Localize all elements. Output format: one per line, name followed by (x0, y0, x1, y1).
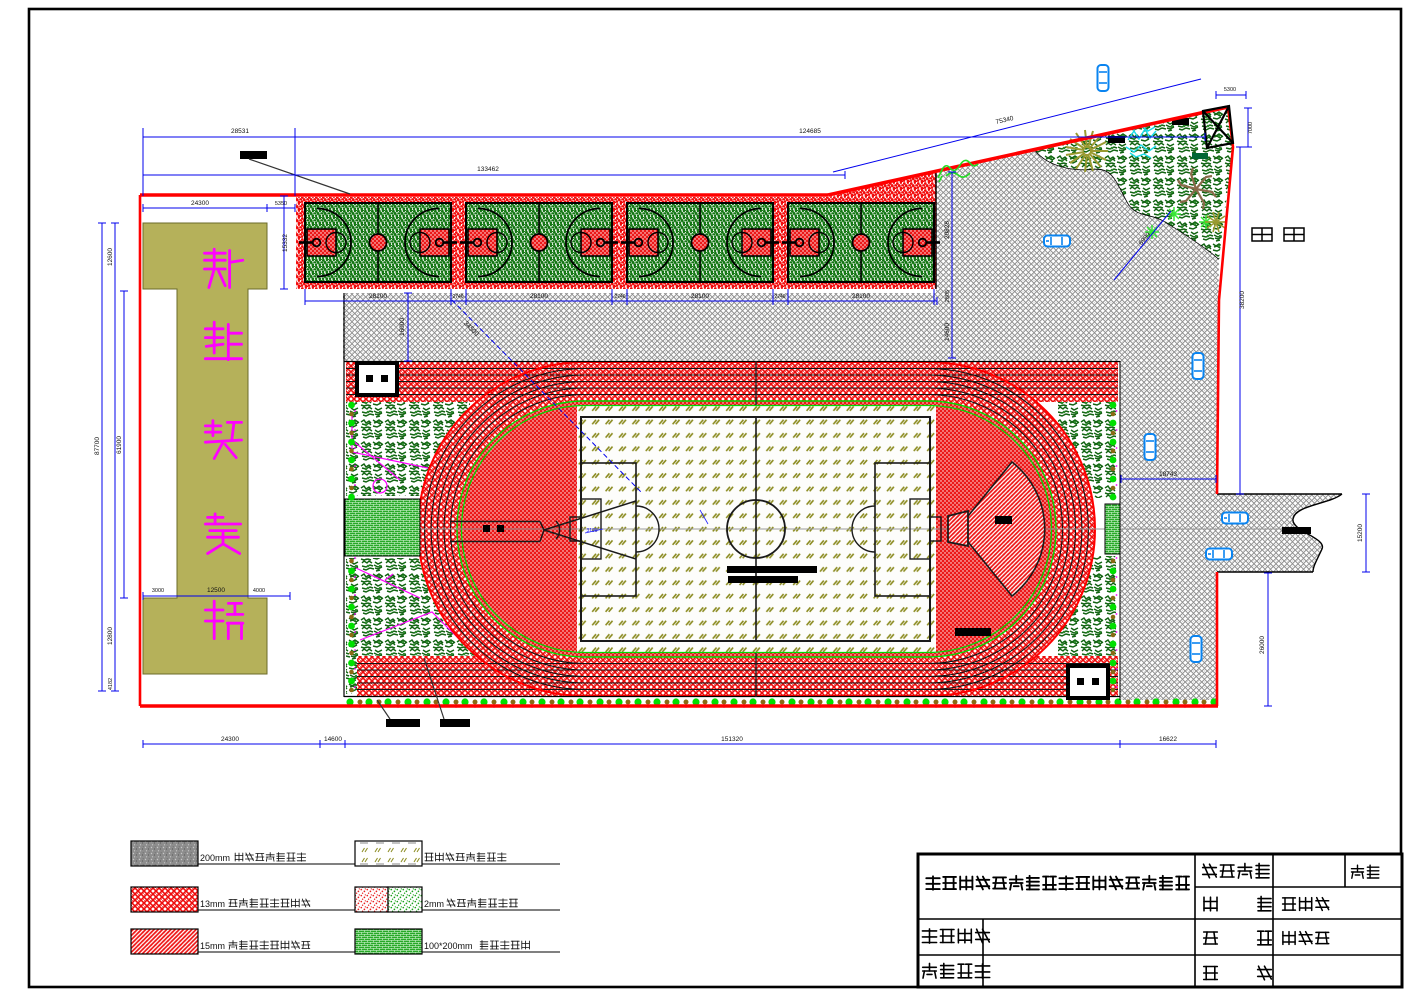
svg-text:24300: 24300 (221, 736, 239, 743)
svg-text:61900: 61900 (116, 436, 123, 454)
svg-text:12800: 12800 (107, 627, 114, 645)
svg-text:38200: 38200 (1239, 291, 1246, 309)
svg-text:28531: 28531 (231, 128, 249, 135)
svg-text:12500: 12500 (207, 587, 225, 594)
svg-text:5300: 5300 (1224, 87, 1236, 93)
svg-text:15332: 15332 (282, 234, 289, 252)
svg-text:20828: 20828 (944, 221, 951, 239)
svg-text:100*200mm: 100*200mm (424, 941, 473, 951)
svg-text:2746: 2746 (452, 294, 463, 300)
svg-text:26000: 26000 (1259, 636, 1266, 654)
svg-text:24300: 24300 (191, 200, 209, 207)
svg-text:2746: 2746 (774, 294, 785, 300)
svg-text:151320: 151320 (721, 736, 743, 743)
svg-text:28100: 28100 (369, 293, 387, 300)
svg-text:28100: 28100 (691, 293, 709, 300)
svg-text:16622: 16622 (1159, 736, 1177, 743)
svg-text:16000: 16000 (399, 318, 406, 336)
svg-text:2746: 2746 (614, 294, 625, 300)
svg-text:87700: 87700 (94, 437, 101, 455)
svg-text:28100: 28100 (852, 293, 870, 300)
svg-text:12600: 12600 (107, 248, 114, 266)
svg-text:2mm: 2mm (424, 899, 444, 909)
svg-text:15mm: 15mm (200, 941, 225, 951)
svg-text:2805: 2805 (945, 290, 951, 302)
svg-text:7000: 7000 (1248, 122, 1254, 134)
svg-text:4000: 4000 (253, 588, 265, 594)
svg-text:18743: 18743 (1159, 471, 1177, 478)
svg-text:14600: 14600 (324, 736, 342, 743)
svg-text:13mm: 13mm (200, 899, 225, 909)
svg-text:3000: 3000 (152, 588, 164, 594)
svg-text:124685: 124685 (799, 128, 821, 135)
svg-text:133462: 133462 (477, 166, 499, 173)
svg-text:15200: 15200 (1357, 524, 1364, 542)
svg-text:14600: 14600 (944, 323, 951, 341)
svg-text:200mm: 200mm (200, 853, 230, 863)
svg-text:4182: 4182 (108, 678, 114, 690)
svg-text:28100: 28100 (530, 293, 548, 300)
svg-text:3100: 3100 (586, 528, 597, 534)
svg-text:5350: 5350 (275, 201, 287, 207)
